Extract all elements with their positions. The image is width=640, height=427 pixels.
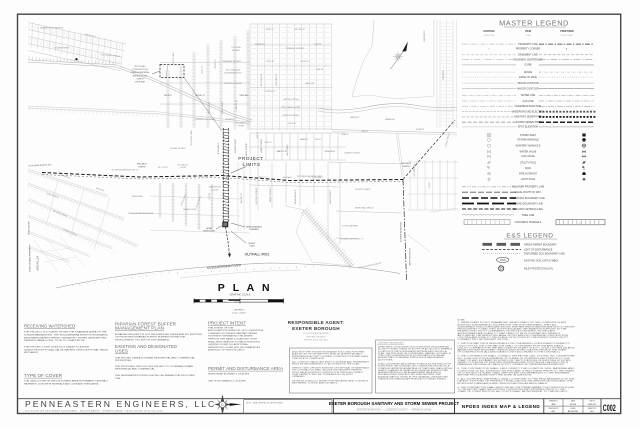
svg-text:WYOMING CT: WYOMING CT [218, 141, 220, 154]
svg-text:MASTER LEGEND: MASTER LEGEND [499, 18, 569, 27]
svg-text:JRM: JRM [551, 404, 555, 406]
svg-text:GRAPHIC SCALE: GRAPHIC SCALE [229, 292, 250, 296]
svg-text:MAJOR CONTOUR: MAJOR CONTOUR [517, 87, 539, 90]
svg-text:DEVELOPMENT OR LIMIT OF DISTUR: DEVELOPMENT OR LIMIT OF DISTURBANCE. [115, 338, 170, 341]
svg-text:BOROUGH STANDARDS AND SPECIFIC: BOROUGH STANDARDS AND SPECIFICATIONS AS … [458, 382, 549, 385]
svg-text:ARCADE ST: ARCADE ST [240, 192, 243, 203]
svg-text:FIRST ST: FIRST ST [266, 29, 275, 31]
svg-text:DELANEY: DELANEY [236, 122, 246, 125]
svg-text:MEMORIAL SPACE: MEMORIAL SPACE [355, 207, 374, 210]
svg-text:OVERHEAD ELECTRIC: OVERHEAD ELECTRIC [515, 105, 542, 108]
svg-text:RESIDENTIAL AND COMMERCIAL.: RESIDENTIAL AND COMMERCIAL. [115, 368, 156, 371]
svg-text:CHAMBER: CHAMBER [249, 228, 259, 231]
svg-text:THE INTENT OF THE: THE INTENT OF THE [208, 327, 234, 329]
svg-text:NPDES PERMIT BOUNDARY = 7.05 A: NPDES PERMIT BOUNDARY = 7.05 ACRES [208, 373, 250, 376]
svg-text:PAVEMENT, CONCRETE SIDEWALK AN: PAVEMENT, CONCRETE SIDEWALK AND CURB AND… [24, 382, 100, 385]
svg-text:1 inch = 100 ft.: 1 inch = 100 ft. [232, 312, 247, 315]
svg-text:LEHIGH ST: LEHIGH ST [236, 99, 238, 110]
svg-text:START OF CONSTRUCTION. ALL COS: START OF CONSTRUCTION. ALL COSTS SHALL B… [458, 390, 570, 393]
svg-text:CLIFF ST: CLIFF ST [416, 129, 425, 131]
svg-text:EXISTING: EXISTING [484, 35, 495, 37]
svg-text:PROPOSED: PROPOSED [560, 30, 574, 33]
svg-text:SECOND ST: SECOND ST [295, 29, 306, 31]
svg-text:ACTIVITIES.: ACTIVITIES. [378, 358, 394, 361]
svg-text:ELM COURT: ELM COURT [209, 101, 211, 114]
svg-text:MC CRACKEN: MC CRACKEN [226, 69, 240, 72]
svg-text:STOBODA PARK: STOBODA PARK [342, 225, 359, 228]
svg-text:USE.: USE. [115, 378, 122, 380]
svg-text:BETWEEN, COSTS, AND DETAILS.: BETWEEN, COSTS, AND DETAILS. [292, 382, 339, 385]
svg-text:ROADWAY CENTERLINE: ROADWAY CENTERLINE [514, 59, 543, 62]
svg-text:NOW LIPTACK PROPERTY: NOW LIPTACK PROPERTY [29, 244, 32, 272]
svg-text:STORM MANHOLE: STORM MANHOLE [517, 139, 539, 142]
svg-text:STORM SEWER PIPE: STORM SEWER PIPE [516, 121, 541, 124]
svg-text:OR PROPOSED RIPARIAN FOREST BU: OR PROPOSED RIPARIAN FOREST BUFFERS WITH… [115, 336, 186, 339]
svg-text:ROW LINE RD: ROW LINE RD [29, 221, 31, 235]
svg-text:JEAN COURT: JEAN COURT [221, 101, 224, 115]
svg-text:GRANT STREET: GRANT STREET [260, 138, 263, 153]
svg-text:THE SITE IS COMPLETE.: THE SITE IS COMPLETE. [292, 358, 326, 360]
svg-text:E&S LEGEND: E&S LEGEND [506, 232, 553, 239]
svg-text:PIPES IN THE SAME LOCATIONS. W: PIPES IN THE SAME LOCATIONS. WITH [208, 338, 258, 341]
svg-text:STREET: STREET [232, 50, 241, 52]
svg-text:MC CAULEY: MC CAULEY [177, 164, 189, 167]
svg-text:2014-137: 2014-137 [588, 404, 597, 406]
svg-text:ZONING BOUNDARY LINE: ZONING BOUNDARY LINE [513, 202, 543, 205]
svg-text:APPLICANT/PROPRIETOR, IS TO SE: APPLICANT/PROPRIETOR, IS TO SERVICE A [208, 329, 264, 332]
svg-text:FINAL RESTORATION TO MATCH EXI: FINAL RESTORATION TO MATCH EXISTING [208, 340, 260, 343]
svg-text:MINOR CONTOUR: MINOR CONTOUR [517, 82, 538, 85]
svg-text:EXETER AVE: EXETER AVE [172, 52, 175, 64]
svg-text:PROPERTIES.: PROPERTIES. [115, 360, 132, 362]
svg-text:CAREY STREET: CAREY STREET [245, 142, 248, 157]
svg-text:PENNSYLVANIA CODE, TITLE 25, C: PENNSYLVANIA CODE, TITLE 25, CHAPTER 93. [24, 339, 86, 342]
svg-text:CEDAR STREET: CEDAR STREET [54, 47, 71, 50]
svg-text:LIGHT POLE: LIGHT POLE [521, 178, 536, 181]
svg-text:STAGING/MATERIAL: STAGING/MATERIAL [130, 71, 150, 74]
svg-text:HILL ST: HILL ST [317, 69, 325, 71]
svg-text:LAUREL ST: LAUREL ST [195, 94, 206, 97]
svg-text:GRANT STREET: GRANT STREET [269, 187, 272, 203]
svg-text:SPRUCE ST: SPRUCE ST [325, 151, 337, 153]
svg-text:MUST BE IMPLEMENTED TO ACTIONS: MUST BE IMPLEMENTED TO ACTIONS FOR THE P… [292, 363, 361, 366]
svg-text:ADJOINER PROPERTY LINE: ADJOINER PROPERTY LINE [512, 186, 545, 189]
svg-text:UNION ST: UNION ST [288, 123, 297, 125]
svg-text:( IN FEET ): ( IN FEET ) [233, 310, 244, 312]
svg-text:JOB NO: JOB NO [589, 401, 596, 403]
svg-text:P L A N: P L A N [218, 282, 272, 294]
svg-text:DRIVE: DRIVE [238, 126, 245, 128]
svg-text:IRENE AVENUE: IRENE AVENUE [294, 189, 297, 204]
svg-text:ANN ST: ANN ST [362, 130, 369, 133]
svg-text:WATER VALVE: WATER VALVE [520, 151, 537, 154]
svg-text:PHILA AVE: PHILA AVE [283, 176, 293, 179]
svg-text:TARA LANE: TARA LANE [131, 195, 143, 198]
svg-text:UTILITY POLE: UTILITY POLE [520, 161, 537, 164]
svg-text:HEMLOCK: HEMLOCK [385, 119, 395, 121]
svg-text:THIRD ST: THIRD ST [266, 61, 275, 63]
svg-text:SANITARY MANHOLE: SANITARY MANHOLE [516, 144, 541, 147]
svg-text:RECEIVING WATERSHED: RECEIVING WATERSHED [24, 324, 75, 329]
svg-text:CONTRACT SEQUENCING: CONTRACT SEQUENCING [378, 342, 404, 345]
svg-text:THE PROPOSED USE FOR THIS PROJ: THE PROPOSED USE FOR THIS PROJECT IS TO … [115, 365, 194, 368]
svg-text:CURB: CURB [525, 64, 532, 67]
svg-text:ERIE ST: ERIE ST [257, 131, 259, 139]
svg-text:AS A WARM-WATER FISHERY, MIGRA: AS A WARM-WATER FISHERY, MIGRATORY FISHE… [24, 336, 107, 339]
svg-text:AREA 400’X100’: AREA 400’X100’ [133, 74, 148, 77]
svg-text:WEST PITTSTON: WEST PITTSTON [410, 248, 412, 265]
svg-text:STORM INLET: STORM INLET [520, 134, 537, 137]
svg-text:GROUND COVER. NO ADDITIONAL: GROUND COVER. NO ADDITIONAL [208, 343, 249, 346]
svg-text:EXETER BOROUGH: EXETER BOROUGH [401, 222, 403, 242]
svg-text:CEDAR STREET: CEDAR STREET [170, 147, 187, 150]
svg-text:100 SOUTH WILKES-BARRE BOUL: 100 SOUTH WILKES-BARRE BOULEVARD · WILKE… [25, 410, 163, 413]
svg-text:THE PROJECT IS LOCATED WITHIN: THE PROJECT IS LOCATED WITHIN THE DRAINA… [24, 331, 107, 334]
svg-text:OBTAINED.: OBTAINED. [292, 375, 306, 378]
svg-text:GAS VALVE: GAS VALVE [521, 155, 535, 158]
svg-text:COMPANY WILL BE PRESENT ON SIT: COMPANY WILL BE PRESENT ON SITE. [458, 338, 510, 341]
svg-text:LIMIT OF DISTURBANCE: LIMIT OF DISTURBANCE [524, 248, 553, 251]
svg-text:INSPECTION: INSPECTION [203, 231, 215, 233]
svg-text:SUSQUEHANNA RIVER. THE SUSQUE: SUSQUEHANNA RIVER. THE SUSQUEHANNA RIVER… [24, 334, 109, 337]
svg-text:PROPERTY CORNER: PROPERTY CORNER [516, 47, 541, 50]
svg-text:TYPE OF COVER: TYPE OF COVER [24, 373, 62, 378]
svg-text:NPDES INDEX MAP & LEGEND: NPDES INDEX MAP & LEGEND [462, 404, 541, 409]
svg-text:DISTURBED SOIL BOUNDARY LINE: DISTURBED SOIL BOUNDARY LINE [524, 253, 565, 256]
svg-text:LINDEN ST: LINDEN ST [300, 61, 310, 63]
svg-text:COURT: COURT [180, 167, 188, 169]
svg-text:EXISTING: EXISTING [483, 30, 494, 33]
svg-text:WATER LINE: WATER LINE [521, 94, 536, 97]
svg-text:FRED STREET: FRED STREET [330, 189, 332, 204]
svg-text:LIMITS: LIMITS [402, 166, 410, 168]
svg-text:PROPOSED: PROPOSED [134, 66, 146, 68]
svg-text:MONTE CLARO: MONTE CLARO [355, 188, 371, 191]
svg-text:A.R.: A.R. [551, 410, 555, 413]
svg-text:A WAIVER REQUEST IS NOT REQUIR: A WAIVER REQUEST IS NOT REQUIRED AS THER… [115, 333, 203, 336]
svg-text:LINES: LINES [249, 246, 255, 248]
svg-text:INLET PROTECTION (I.P.): INLET PROTECTION (I.P.) [524, 267, 553, 270]
svg-text:100: 100 [488, 88, 491, 90]
svg-text:MAPLE ST: MAPLE ST [306, 82, 316, 85]
svg-text:SLOCUM ST: SLOCUM ST [261, 73, 263, 85]
svg-text:NORTH ST: NORTH ST [255, 44, 265, 46]
svg-text:MC COURT: MC COURT [158, 167, 169, 169]
svg-text:FOURTH ST: FOURTH ST [265, 91, 276, 93]
svg-text:CHERRY DRIVE: CHERRY DRIVE [344, 153, 360, 155]
svg-text:ELM ST: ELM ST [429, 181, 431, 188]
svg-text:RED OAKS COURT: RED OAKS COURT [282, 106, 301, 109]
svg-text:6/2020: 6/2020 [570, 404, 577, 406]
svg-text:WARSAW STREET: WARSAW STREET [223, 60, 242, 63]
svg-text:VINE ST: VINE ST [342, 134, 350, 136]
svg-text:WYOMING AVENUE (SR 11): WYOMING AVENUE (SR 11) [112, 169, 139, 172]
svg-text:USES: USES [115, 349, 128, 354]
svg-text:EXISTING SOIL UNIT SYMBOL: EXISTING SOIL UNIT SYMBOL [524, 259, 559, 262]
svg-text:PHONE: (570) 654-3001: PHONE: (570) 654-3001 [304, 340, 329, 342]
svg-text:MGM VILLEY: MGM VILLEY [37, 255, 40, 270]
svg-text:SHEET NO: SHEET NO [588, 408, 597, 410]
svg-text:THE PROJECT AREA IS URBAN RESI: THE PROJECT AREA IS URBAN RESIDENTIAL AN… [115, 356, 196, 359]
svg-text:WYANDIE STREET: WYANDIE STREET [286, 47, 305, 50]
svg-text:THE PROJECT SITE DOES NOT DRAI: THE PROJECT SITE DOES NOT DRAIN TO A HIG… [24, 346, 90, 349]
svg-text:FENCE: FENCE [524, 71, 533, 74]
svg-text:PROPERTY LINE: PROPERTY LINE [518, 43, 538, 46]
svg-text:BUILDING SETBACK LINE: BUILDING SETBACK LINE [513, 208, 543, 211]
svg-text:SIGN: SIGN [525, 167, 531, 170]
svg-text:NOTES:: NOTES: [458, 320, 466, 322]
svg-text:DIANA COURT: DIANA COURT [183, 208, 198, 211]
svg-text:RENKIN STREET: RENKIN STREET [283, 115, 300, 117]
svg-text:AS NOTED: AS NOTED [568, 410, 579, 413]
svg-text:ROMAN CATHOLIC: ROMAN CATHOLIC [341, 238, 360, 241]
svg-text:WASHINGTON AVENUE: WASHINGTON AVENUE [40, 27, 64, 30]
svg-text:A RESULT OF THIS PROJECT.: A RESULT OF THIS PROJECT. [208, 349, 246, 352]
svg-text:KINGSWOOD DRIVE: KINGSWOOD DRIVE [195, 119, 216, 121]
svg-text:LIMIT OF DISTURBANCE = 7.01 AC: LIMIT OF DISTURBANCE = 7.01 ACRES [208, 379, 246, 382]
svg-text:SYSTEM BY SEPARATING THE SEWER: SYSTEM BY SEPARATING THE SEWER [208, 335, 253, 338]
svg-text:NPDES PERMIT BOUNDARY: NPDES PERMIT BOUNDARY [524, 244, 557, 247]
svg-text:PARK AVE: PARK AVE [239, 94, 249, 97]
svg-text:THE DESIGNATED FUTURE USE WILL: THE DESIGNATED FUTURE USE WILL BE REMAIN… [115, 374, 196, 377]
svg-text:HOLDEN ST: HOLDEN ST [276, 74, 278, 86]
svg-text:GRANT CT: GRANT CT [257, 176, 267, 179]
svg-text:COLLEGE: COLLEGE [231, 47, 241, 49]
svg-text:SPOT ELEVATION: SPOT ELEVATION [518, 126, 539, 129]
svg-text:CHECKED BY: CHECKED BY [548, 408, 559, 410]
svg-text:EXETER BOROUGH SANITARY AND ST: EXETER BOROUGH SANITARY AND STORM SEWER … [329, 401, 460, 406]
svg-text:ONSITE: ONSITE [136, 78, 144, 80]
svg-text:EDGE OF PAVE: EDGE OF PAVE [519, 76, 537, 79]
svg-text:PROJECT INTENT: PROJECT INTENT [208, 321, 246, 326]
svg-text:4: 4 [580, 222, 581, 224]
svg-text:ELM ST: ELM ST [209, 192, 211, 199]
svg-text:ITEM: ITEM [525, 30, 531, 33]
svg-text:SUSAN STREET: SUSAN STREET [234, 138, 237, 153]
svg-text:PROPOSED: PROPOSED [561, 35, 574, 37]
svg-text:OUTFALL #001: OUTFALL #001 [245, 253, 270, 257]
svg-text:WETLANDS.: WETLANDS. [24, 351, 39, 354]
svg-text:SUSQUEHANNA AVENUE: SUSQUEHANNA AVENUE [129, 212, 154, 215]
svg-text:SPENCER STREET: SPENCER STREET [224, 83, 244, 85]
svg-text:PINE ST: PINE ST [265, 142, 273, 144]
svg-text:LIMITS: LIMITS [242, 162, 260, 167]
svg-text:CONCRETE SIDEWALK: CONCRETE SIDEWALK [515, 221, 542, 224]
svg-text:SANITARY SEWER PIPE: SANITARY SEWER PIPE [514, 116, 542, 119]
svg-text:IMPERVIOUS COVER WILL BE CREAT: IMPERVIOUS COVER WILL BE CREATED AS [208, 346, 261, 349]
svg-text:GAS LINE: GAS LINE [522, 100, 534, 103]
svg-text:HIGH ST: HIGH ST [300, 139, 309, 141]
svg-text:PACKER ST: PACKER ST [423, 30, 426, 42]
svg-text:NOTE: · SEAL VERIFIED NOT AP: NOTE: · SEAL VERIFIED NOT APPLIES AND [246, 401, 283, 404]
svg-text:1101 WYOMING AVENUE: 1101 WYOMING AVENUE [303, 332, 329, 335]
svg-text:WYOMING AVE: WYOMING AVE [413, 163, 416, 177]
svg-text:GROVE ST: GROVE ST [215, 58, 217, 68]
svg-text:C002: C002 [603, 403, 616, 413]
svg-text:STAGE A SITE GRADING APPROACH: STAGE A SITE GRADING APPROACH AT ITS GRE… [378, 378, 447, 381]
svg-text:MANAGEMENT PLAN: MANAGEMENT PLAN [115, 326, 164, 331]
svg-text:PENNEASTERN ENGINEERS, LLC: PENNEASTERN ENGINEERS, LLC [25, 399, 216, 409]
svg-text:FIRE HYDRANT: FIRE HYDRANT [519, 172, 538, 175]
svg-text:COMBINED STORM AND SANITARY SE: COMBINED STORM AND SANITARY SEWER [208, 332, 258, 335]
svg-text:EASEMENT LINE: EASEMENT LINE [518, 54, 538, 57]
svg-text:RIVER RD: RIVER RD [443, 70, 445, 80]
svg-text:EXETER BOROUGH — LUZERNE COU: EXETER BOROUGH — LUZERNE COUNTY — PENNSY… [357, 408, 432, 412]
svg-text:OAK ST: OAK ST [315, 138, 322, 141]
svg-text:MARKINGS PROVIDED BY EACH UTIL: MARKINGS PROVIDED BY EACH UTILITY OWNER … [458, 363, 566, 366]
svg-text:RESPONSIBLE AGENT:: RESPONSIBLE AGENT: [288, 320, 345, 325]
svg-text:KEY CT: KEY CT [315, 44, 323, 46]
svg-text:LINCOLN STREET: LINCOLN STREET [256, 187, 258, 205]
svg-text:LIMITS: LIMITS [138, 166, 146, 168]
svg-text:LEE STREET: LEE STREET [287, 143, 289, 155]
svg-text:SCHOOLEY AVE: SCHOOLEY AVE [190, 130, 193, 146]
svg-text:C: C [221, 403, 224, 407]
svg-text:WILDERNESS RD: WILDERNESS RD [224, 73, 242, 75]
svg-text:SUSAN ST: SUSAN ST [226, 118, 236, 121]
svg-text:OF CONSTRUCTION (ALL ASSOCIATE: OF CONSTRUCTION (ALL ASSOCIATED COSTS AC… [458, 351, 562, 354]
svg-text:RACE ST: RACE ST [164, 94, 173, 97]
svg-text:EXETER, PA 18643: EXETER, PA 18643 [306, 335, 326, 338]
svg-text:COURT: COURT [211, 190, 219, 192]
svg-text:ITEM: ITEM [525, 35, 530, 37]
svg-text:EXETER BOROUGH: EXETER BOROUGH [292, 326, 340, 331]
svg-text:FIRST ST: FIRST ST [202, 65, 204, 74]
svg-text:PROJECT: PROJECT [401, 163, 412, 165]
svg-text:LEGAL RIGHT OF WAY: LEGAL RIGHT OF WAY [515, 191, 541, 194]
svg-text:TREE LINE: TREE LINE [522, 214, 535, 217]
svg-text:DRIVEWAY: DRIVEWAY [135, 81, 146, 84]
svg-text:PROJECT: PROJECT [238, 156, 263, 161]
svg-text:PERMIT AND DISTURBANCE AREA: PERMIT AND DISTURBANCE AREA [208, 366, 283, 371]
svg-text:ANDERSON: ANDERSON [209, 186, 221, 189]
svg-text:BEFORE PROCEEDING WITH THE WOR: BEFORE PROCEEDING WITH THE WORK IN QUEST… [458, 375, 533, 377]
svg-text:COOLIDGE: COOLIDGE [312, 177, 322, 179]
svg-text:QUALITY/EXCEPTIONAL VALUE WATE: QUALITY/EXCEPTIONAL VALUE WATERS OR EXCE… [24, 348, 109, 351]
svg-text:MUNICIPAL BOUNDARY LINE: MUNICIPAL BOUNDARY LINE [511, 197, 545, 200]
svg-text:PROJECT: PROJECT [137, 164, 148, 166]
svg-text:BIRCH CT: BIRCH CT [351, 117, 361, 119]
svg-text:GROVE CIRCLE: GROVE CIRCLE [283, 99, 299, 101]
svg-text:THE LAND COVER IN THE DISTURBE: THE LAND COVER IN THE DISTURBED AREA IS … [24, 380, 109, 383]
svg-text:ChA: ChA [500, 258, 506, 262]
svg-text:CONSTRUCTION: CONSTRUCTION [132, 69, 149, 71]
